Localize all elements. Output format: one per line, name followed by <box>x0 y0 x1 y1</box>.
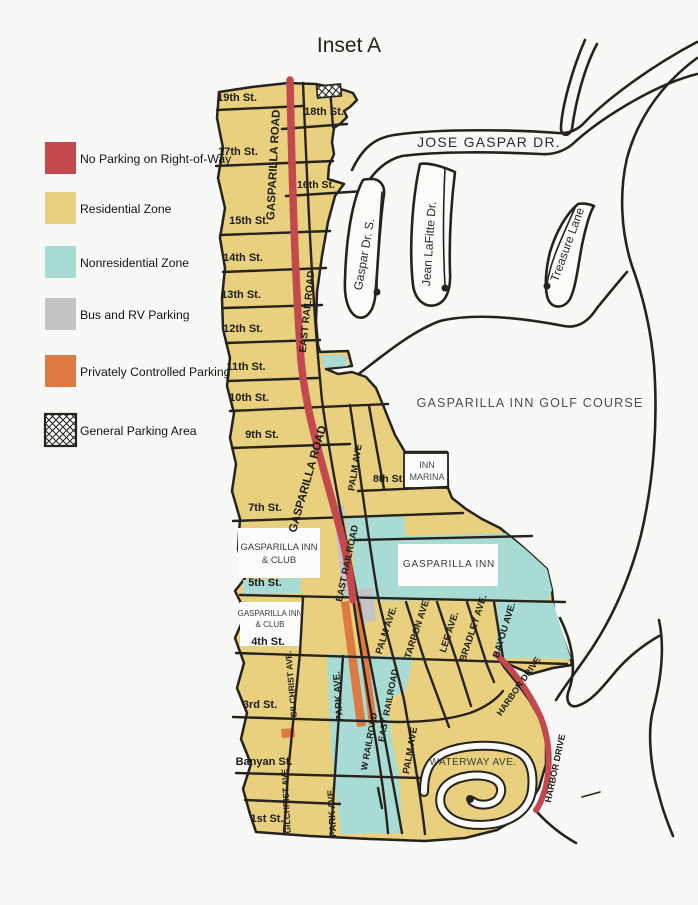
legend-item-residential: Residential Zone <box>45 192 172 224</box>
street-label-9th: 9th St. <box>245 429 279 441</box>
parcel-gasparilla-inn-club-upper <box>238 528 320 578</box>
legend-item-bus-rv: Bus and RV Parking <box>45 298 190 330</box>
legend-item-nonresidential: Nonresidential Zone <box>45 246 189 278</box>
parcel-inn-marina <box>404 453 448 488</box>
street-label-15th: 15th St. <box>229 215 269 227</box>
legend-swatch-nonresidential <box>45 246 76 278</box>
street-label-5th: 5th St. <box>248 577 282 589</box>
legend-label-private: Privately Controlled Parking <box>80 365 230 379</box>
place-label-inn-marina-2: MARINA <box>409 472 444 482</box>
legend: No Parking on Right-of-WayResidential Zo… <box>45 142 232 446</box>
treasure-lane-end-dot <box>544 283 551 290</box>
street-label-4th: 4th St. <box>251 636 285 648</box>
north-inlet-outline <box>561 40 597 135</box>
legend-item-no-parking: No Parking on Right-of-Way <box>45 142 232 174</box>
jean-lafitte-end-dot <box>442 285 449 292</box>
dock-line <box>582 792 600 797</box>
road-label-jose-gaspar-dr: JOSE GASPAR DR. <box>417 134 561 150</box>
place-label-golf-course: GASPARILLA INN GOLF COURSE <box>417 396 644 410</box>
street-label-10th: 10th St. <box>229 392 269 404</box>
golf-course-north-edge <box>356 272 627 376</box>
place-label-inn-marina-1: INN <box>419 460 435 470</box>
waterway-end-dot <box>466 795 474 803</box>
legend-label-nonresidential: Nonresidential Zone <box>80 256 189 270</box>
harbor-east-shoreline <box>560 618 659 706</box>
south-harbor-shoreline <box>537 812 576 843</box>
street-label-1st: 1st St. <box>250 813 283 825</box>
gaspar-dr-s-end-dot <box>374 289 381 296</box>
general-parking-area-box <box>317 84 342 98</box>
street-label-banyan: Banyan St. <box>236 756 293 768</box>
place-label-inn-club-upper-2: & CLUB <box>262 555 296 566</box>
legend-swatch-private <box>45 355 76 387</box>
street-label-7th: 7th St. <box>248 502 282 514</box>
map-page: Inset A No Parking on Right-of-WayReside… <box>0 0 698 905</box>
legend-label-general: General Parking Area <box>80 424 197 438</box>
street-label-17th: 17th St. <box>218 146 258 158</box>
legend-label-bus-rv: Bus and RV Parking <box>80 308 190 322</box>
street-label-16th: 16th St. <box>297 179 335 191</box>
legend-swatch-bus-rv <box>45 298 76 330</box>
legend-item-general: General Parking Area <box>45 414 197 446</box>
legend-swatch-no-parking <box>45 142 76 174</box>
place-label-inn-club-lower-1: GASPARILLA INN <box>238 609 303 618</box>
street-label-19th: 19th St. <box>217 92 257 104</box>
place-label-inn-club-lower-2: & CLUB <box>256 620 285 629</box>
page-title: Inset A <box>317 34 381 57</box>
street-label-14th: 14th St. <box>223 252 263 264</box>
legend-swatch-residential <box>45 192 76 224</box>
road-label-waterway-ave: WATERWAY AVE. <box>429 757 516 768</box>
parking-map-inset-a: Inset A No Parking on Right-of-WayReside… <box>0 0 698 905</box>
street-label-18th: 18th St. <box>304 106 344 118</box>
east-shoreline <box>556 58 697 700</box>
jose-gaspar-corridor-north-line <box>352 42 697 170</box>
legend-label-residential: Residential Zone <box>80 202 172 216</box>
place-label-inn-club-upper-1: GASPARILLA INN <box>241 542 318 553</box>
street-label-13th: 13th St. <box>221 289 261 301</box>
place-label-gasparilla-inn: GASPARILLA INN <box>403 559 495 570</box>
street-label-8th: 8th St. <box>373 473 405 485</box>
southeast-shoreline <box>650 620 673 836</box>
legend-item-private: Privately Controlled Parking <box>45 355 230 387</box>
cul-de-sac-roads <box>345 164 594 318</box>
legend-swatch-hatch-pattern <box>45 414 76 446</box>
legend-label-no-parking: No Parking on Right-of-Way <box>80 152 232 166</box>
street-label-12th: 12th St. <box>223 323 263 335</box>
nonresidential-zone-11th <box>321 355 348 368</box>
street-label-3rd: 3rd St. <box>243 699 277 711</box>
street-label-11th: 11th St. <box>226 361 265 373</box>
